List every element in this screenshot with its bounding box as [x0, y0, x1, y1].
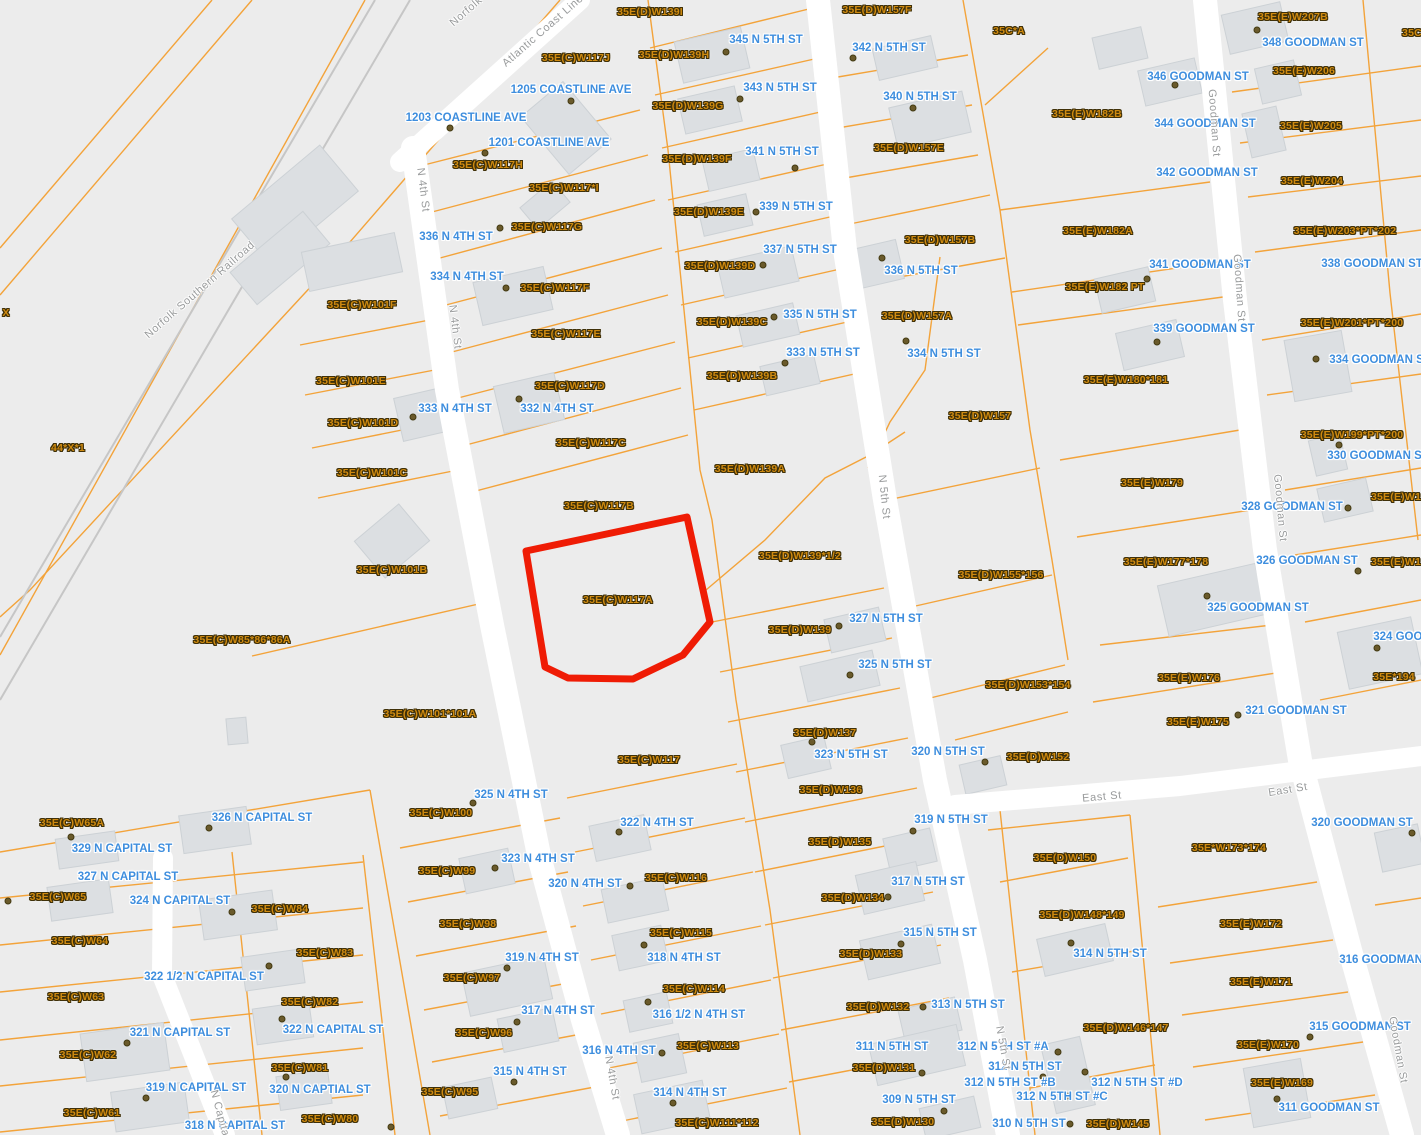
building-footprint: [252, 1001, 313, 1045]
building-footprint: [226, 717, 248, 745]
building-footprint: [1284, 330, 1352, 401]
gis-parcel-map-canvas[interactable]: 35E(D)W139I35C*A35E(E)W207B35E(D)W157F35…: [0, 0, 1421, 1135]
building-footprint: [1374, 824, 1421, 872]
building-footprint: [1243, 1058, 1311, 1127]
building-footprint: [276, 1070, 332, 1111]
map-layers: [0, 0, 1421, 1135]
